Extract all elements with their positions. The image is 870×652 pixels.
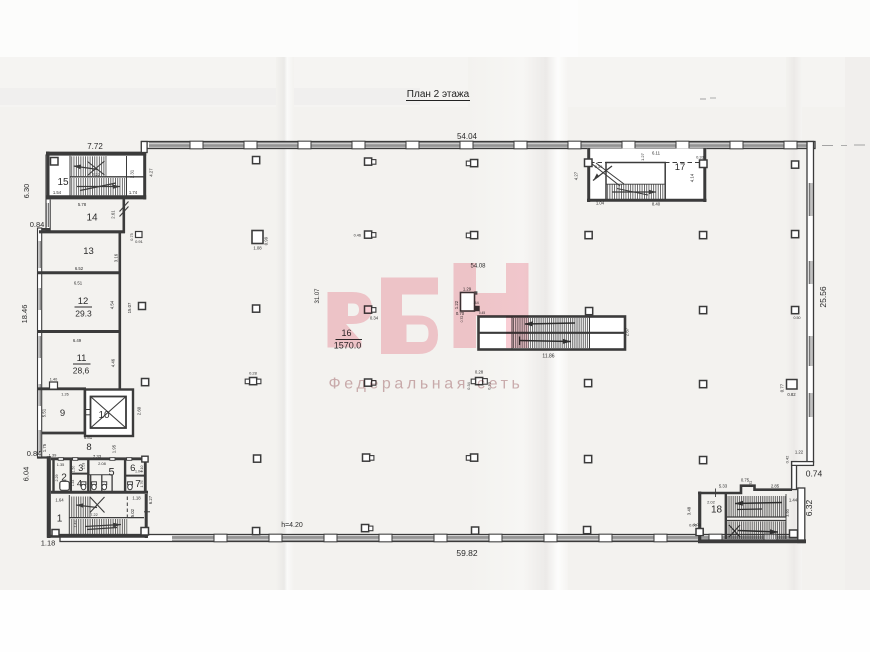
svg-text:4.14: 4.14	[690, 173, 695, 182]
svg-text:17: 17	[675, 162, 686, 173]
svg-text:9: 9	[60, 408, 65, 419]
svg-text:1.04: 1.04	[596, 201, 605, 206]
svg-text:8.40: 8.40	[652, 202, 661, 207]
svg-text:6.32: 6.32	[804, 499, 814, 516]
svg-text:2.61: 2.61	[111, 210, 116, 219]
svg-text:4.27: 4.27	[574, 171, 579, 180]
svg-text:18: 18	[711, 505, 723, 516]
svg-text:6.52: 6.52	[75, 266, 84, 271]
svg-text:1.64: 1.64	[55, 498, 64, 503]
svg-text:14: 14	[86, 213, 98, 224]
svg-text:15.07: 15.07	[127, 302, 132, 313]
svg-text:12: 12	[78, 296, 89, 307]
svg-text:1.03: 1.03	[82, 463, 86, 470]
svg-text:0.39: 0.39	[595, 164, 604, 169]
svg-text:1.33: 1.33	[71, 480, 75, 487]
svg-text:8: 8	[86, 442, 91, 453]
svg-text:3.48: 3.48	[687, 506, 692, 515]
svg-text:2.67: 2.67	[625, 327, 630, 336]
svg-text:15: 15	[57, 177, 69, 188]
svg-text:0.84: 0.84	[27, 449, 42, 458]
svg-text:1.26: 1.26	[61, 393, 68, 397]
svg-text:1.08: 1.08	[253, 246, 262, 251]
svg-text:1.50: 1.50	[71, 466, 75, 473]
svg-text:2.31: 2.31	[130, 169, 135, 178]
svg-text:1.54: 1.54	[53, 190, 62, 195]
svg-text:1.75: 1.75	[42, 443, 47, 452]
svg-text:3.90: 3.90	[786, 509, 790, 516]
svg-text:5.02: 5.02	[130, 508, 135, 517]
svg-text:0.34: 0.34	[370, 316, 379, 321]
svg-text:6.11: 6.11	[652, 151, 661, 156]
svg-text:2.85: 2.85	[771, 484, 780, 489]
svg-text:1.35: 1.35	[57, 463, 64, 467]
svg-text:6.49: 6.49	[73, 338, 82, 343]
svg-text:29.3: 29.3	[75, 309, 92, 319]
svg-text:10: 10	[98, 410, 110, 421]
svg-text:6.27: 6.27	[148, 495, 153, 504]
svg-text:59.82: 59.82	[456, 548, 478, 558]
svg-text:1: 1	[57, 514, 63, 525]
svg-text:7.22: 7.22	[90, 513, 97, 517]
svg-text:2.29: 2.29	[55, 475, 59, 482]
svg-text:11: 11	[77, 353, 87, 364]
svg-text:11.86: 11.86	[542, 354, 554, 360]
svg-text:0.82: 0.82	[787, 392, 796, 397]
svg-text:1.18: 1.18	[132, 496, 141, 501]
svg-text:1.39: 1.39	[49, 453, 58, 458]
svg-text:6.30: 6.30	[22, 184, 31, 199]
svg-text:h=4.20: h=4.20	[281, 522, 303, 529]
svg-text:1.10: 1.10	[140, 466, 144, 473]
svg-text:1.40: 1.40	[50, 378, 57, 382]
svg-text:Федеральная сеть: Федеральная сеть	[329, 376, 524, 393]
svg-text:6.51: 6.51	[74, 281, 83, 286]
svg-text:4.54: 4.54	[110, 300, 115, 309]
svg-text:1.74: 1.74	[129, 190, 138, 195]
svg-text:25.56: 25.56	[818, 286, 828, 308]
svg-text:13: 13	[83, 246, 94, 257]
svg-text:1.22: 1.22	[795, 450, 804, 455]
svg-text:3.16: 3.16	[114, 253, 119, 262]
svg-text:0.28: 0.28	[249, 371, 258, 376]
svg-text:0.42: 0.42	[785, 455, 790, 464]
svg-text:1.76: 1.76	[140, 481, 144, 488]
svg-text:6.81: 6.81	[84, 435, 93, 440]
svg-text:0.99: 0.99	[264, 236, 269, 245]
svg-text:7.72: 7.72	[87, 142, 103, 151]
svg-text:0.74: 0.74	[806, 469, 823, 479]
svg-text:4.46: 4.46	[111, 358, 116, 367]
svg-text:4.27: 4.27	[149, 168, 154, 177]
svg-text:2.08: 2.08	[98, 461, 107, 466]
svg-text:7.22: 7.22	[92, 172, 101, 177]
svg-text:2.02: 2.02	[707, 500, 716, 505]
svg-text:0.91: 0.91	[135, 239, 144, 244]
svg-text:1.18: 1.18	[41, 539, 56, 548]
svg-text:1.44: 1.44	[789, 498, 798, 503]
svg-text:54.04: 54.04	[457, 132, 478, 141]
svg-text:0.50: 0.50	[794, 316, 801, 320]
svg-text:31.07: 31.07	[315, 288, 321, 304]
svg-text:0.84: 0.84	[30, 220, 45, 229]
svg-text:2.60: 2.60	[137, 406, 142, 415]
svg-text:0.33: 0.33	[696, 155, 705, 160]
svg-text:1.95: 1.95	[112, 444, 117, 453]
svg-text:5: 5	[108, 467, 114, 479]
svg-text:5.33: 5.33	[719, 484, 728, 489]
svg-text:28,6: 28,6	[73, 366, 90, 376]
svg-text:5.51: 5.51	[42, 408, 47, 417]
svg-text:18.46: 18.46	[20, 305, 29, 324]
svg-text:5.78: 5.78	[78, 202, 87, 207]
svg-text:План 2 этажа: План 2 этажа	[407, 89, 470, 100]
svg-text:6.04: 6.04	[22, 467, 31, 482]
svg-text:0.75: 0.75	[130, 233, 134, 240]
svg-text:0.46: 0.46	[354, 234, 361, 238]
svg-text:1.27: 1.27	[640, 152, 645, 161]
svg-text:1.72: 1.72	[749, 481, 753, 488]
svg-text:0.06: 0.06	[693, 523, 700, 527]
svg-text:0.28: 0.28	[475, 370, 484, 375]
svg-text:1.43: 1.43	[74, 521, 78, 528]
svg-text:7.33: 7.33	[93, 454, 102, 459]
svg-text:0.77: 0.77	[780, 383, 785, 392]
